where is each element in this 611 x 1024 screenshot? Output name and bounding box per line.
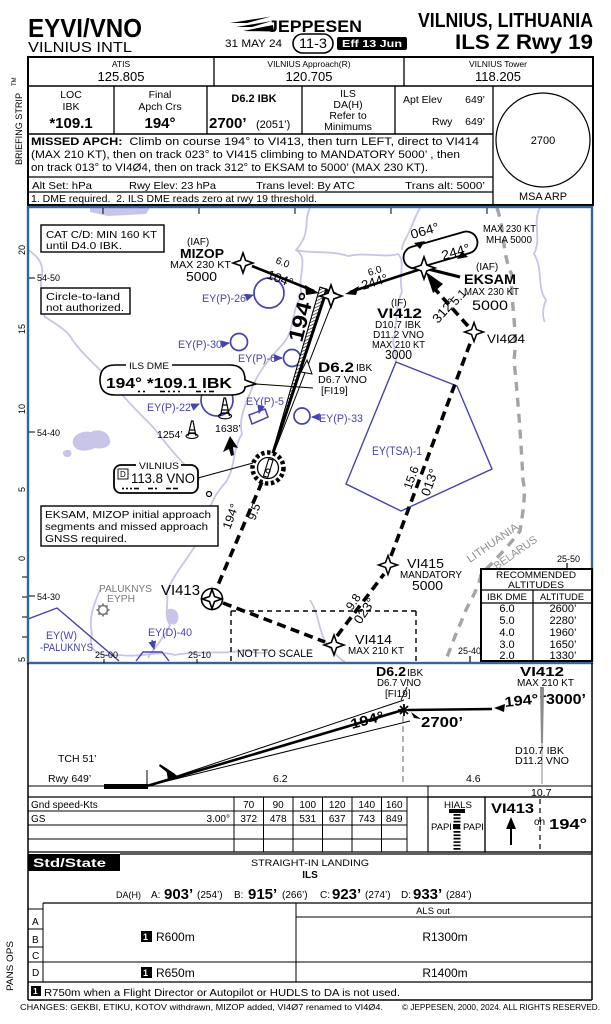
svg-text:2280’: 2280’	[550, 615, 577, 627]
svg-text:EY(P)-26: EY(P)-26	[202, 293, 246, 305]
svg-text:VI412: VI412	[520, 664, 564, 679]
svg-text:5: 5	[17, 657, 27, 662]
svg-text:194°: 194°	[549, 816, 587, 833]
svg-text:4.6: 4.6	[466, 773, 481, 785]
svg-text:1. DME required. 2. ILS DME r: 1. DME required. 2. ILS DME reads zero a…	[31, 193, 317, 205]
svg-text:649’: 649’	[465, 116, 485, 128]
svg-text:1: 1	[143, 968, 148, 978]
svg-text:STRAIGHT-IN LANDING: STRAIGHT-IN LANDING	[251, 858, 369, 869]
svg-text:ALS out: ALS out	[416, 906, 450, 917]
svg-text:-PALUKNYS: -PALUKNYS	[40, 642, 93, 654]
svg-text:until D4.0 IBK.: until D4.0 IBK.	[46, 240, 122, 252]
svg-text:3.00°: 3.00°	[207, 814, 230, 825]
svg-text:5000: 5000	[472, 297, 508, 313]
svg-text:(284’): (284’)	[446, 890, 472, 901]
svg-text:TM: TM	[12, 77, 18, 86]
svg-text:EY(P)-6: EY(P)-6	[238, 353, 276, 365]
svg-text:EKSAM, MIZOP initial approach: EKSAM, MIZOP initial approach	[45, 509, 211, 521]
svg-text:PAPI: PAPI	[463, 822, 484, 833]
svg-text:PAPI: PAPI	[431, 822, 452, 833]
svg-text:EY(D)-40: EY(D)-40	[148, 627, 192, 639]
svg-text:54-40: 54-40	[37, 428, 60, 438]
svg-text:Eff 13 Jun: Eff 13 Jun	[342, 39, 402, 50]
svg-text:Alt Set: hPa: Alt Set: hPa	[32, 180, 92, 192]
svg-text:BRIEFING STRIP: BRIEFING STRIP	[14, 93, 25, 165]
svg-text:Final: Final	[149, 89, 172, 101]
svg-text:VI413: VI413	[491, 800, 534, 816]
svg-text:VI4Ø4: VI4Ø4	[487, 332, 525, 346]
svg-text:100: 100	[299, 800, 316, 811]
svg-text:EY(P)-30: EY(P)-30	[178, 339, 222, 351]
svg-text:R650m: R650m	[156, 966, 195, 980]
svg-text:194°: 194°	[144, 115, 175, 132]
svg-text:25-00: 25-00	[95, 650, 118, 660]
svg-text:LOC: LOC	[60, 89, 82, 101]
svg-text:10: 10	[17, 404, 27, 414]
svg-text:120.705: 120.705	[286, 69, 333, 84]
svg-text:2700: 2700	[531, 135, 555, 147]
svg-text:1330’: 1330’	[550, 650, 577, 662]
svg-text:3000: 3000	[385, 347, 412, 362]
svg-text:R1400m: R1400m	[422, 966, 467, 980]
svg-text:ALTITUDE: ALTITUDE	[540, 592, 584, 603]
svg-text:2600’: 2600’	[550, 603, 577, 615]
svg-text:(274’): (274’)	[365, 890, 391, 901]
svg-text:54-50: 54-50	[37, 273, 60, 283]
svg-text:D6.2: D6.2	[376, 664, 406, 679]
svg-text:VILNIUS Tower: VILNIUS Tower	[469, 59, 527, 69]
svg-text:not authorized.: not authorized.	[46, 302, 124, 314]
svg-text:D6.2 IBK: D6.2 IBK	[231, 93, 276, 105]
svg-text:D11.2 VNO: D11.2 VNO	[515, 755, 569, 767]
svg-text:Gnd speed-Kts: Gnd speed-Kts	[31, 800, 98, 811]
svg-text:31 MAY 24: 31 MAY 24	[225, 38, 282, 50]
svg-text:EY(W): EY(W)	[46, 630, 77, 642]
svg-text:5000: 5000	[412, 578, 443, 593]
svg-text:Minimums: Minimums	[324, 121, 372, 133]
svg-text:6.2: 6.2	[273, 773, 288, 785]
svg-text:531: 531	[299, 814, 316, 825]
svg-text:ALTITUDES: ALTITUDES	[508, 580, 564, 591]
svg-text:478: 478	[270, 814, 287, 825]
svg-text:11-3: 11-3	[299, 35, 327, 51]
svg-text:90: 90	[273, 800, 285, 811]
svg-text:VILNIUS INTL: VILNIUS INTL	[28, 39, 132, 56]
svg-text:903’: 903’	[164, 886, 193, 903]
svg-text:VI413: VI413	[161, 582, 200, 599]
svg-text:25-50: 25-50	[557, 554, 580, 564]
svg-text:743: 743	[358, 814, 375, 825]
svg-text:Trans level: By ATC: Trans level: By ATC	[256, 180, 355, 192]
svg-text:[FI19]: [FI19]	[321, 385, 348, 397]
svg-text:R1300m: R1300m	[422, 930, 467, 944]
svg-text:5000: 5000	[186, 269, 217, 284]
svg-text:EY(TSA)-1: EY(TSA)-1	[372, 444, 422, 458]
svg-text:Rwy Elev: 23 hPa: Rwy Elev: 23 hPa	[129, 180, 216, 192]
svg-text:C: C	[32, 951, 39, 962]
svg-text:637: 637	[329, 814, 346, 825]
svg-text:5: 5	[17, 487, 27, 492]
svg-text:MAX 210 KT: MAX 210 KT	[348, 645, 405, 657]
svg-text:D:: D:	[401, 890, 411, 901]
svg-text:B:: B:	[234, 890, 243, 901]
svg-text:118.205: 118.205	[475, 69, 521, 84]
svg-text:PANS OPS: PANS OPS	[5, 941, 15, 991]
svg-text:segments and missed approach: segments and missed approach	[45, 521, 208, 533]
svg-text:JEPPESEN: JEPPESEN	[268, 17, 362, 36]
svg-text:3000’: 3000’	[546, 691, 586, 708]
svg-text:20: 20	[17, 245, 27, 255]
svg-text:1960’: 1960’	[550, 627, 577, 639]
svg-text:*109.1: *109.1	[49, 115, 92, 132]
svg-text:B: B	[32, 935, 39, 946]
svg-text:MHA 5000: MHA 5000	[486, 234, 532, 246]
svg-text:6.0: 6.0	[499, 603, 514, 615]
svg-text:EKSAM: EKSAM	[464, 271, 516, 287]
svg-text:5.0: 5.0	[499, 615, 514, 627]
svg-text:Rwy: Rwy	[432, 116, 453, 128]
svg-text:923’: 923’	[332, 886, 361, 903]
svg-text:0: 0	[17, 556, 27, 561]
svg-text:Rwy 649’: Rwy 649’	[48, 773, 91, 785]
svg-text:25-10: 25-10	[188, 650, 211, 660]
svg-text:R600m: R600m	[156, 930, 195, 944]
svg-text:933’: 933’	[413, 886, 442, 903]
svg-text:2.0: 2.0	[499, 650, 514, 662]
svg-text:C:: C:	[320, 890, 330, 901]
svg-text:ATIS: ATIS	[112, 59, 131, 69]
svg-text:CHANGES: GEKBI, ETIKU, KOTOV w: CHANGES: GEKBI, ETIKU, KOTOV withdrawn, …	[20, 1003, 383, 1012]
svg-text:160: 160	[386, 800, 403, 811]
svg-text:TCH 51’: TCH 51’	[58, 753, 97, 765]
svg-text:on track 013° to VI4Ø4, then o: on track 013° to VI4Ø4, then on track 31…	[31, 162, 428, 174]
svg-text:R750m when a Flight Director o: R750m when a Flight Director or Autopilo…	[44, 987, 400, 999]
svg-text:IBK: IBK	[356, 363, 372, 374]
svg-text:194° *109.1 IBK: 194° *109.1 IBK	[106, 375, 232, 392]
svg-text:EY(P)-22: EY(P)-22	[147, 402, 191, 414]
svg-text:Apch Crs: Apch Crs	[138, 101, 181, 113]
svg-text:DA(H): DA(H)	[116, 890, 141, 900]
svg-text:EY(P)-33: EY(P)-33	[319, 413, 363, 425]
svg-text:1254’: 1254’	[157, 429, 183, 441]
svg-text:372: 372	[240, 814, 257, 825]
svg-text:ILS DME: ILS DME	[129, 361, 169, 371]
svg-text:1: 1	[143, 932, 148, 942]
svg-text:140: 140	[358, 800, 375, 811]
svg-text:GNSS required.: GNSS required.	[45, 533, 127, 545]
svg-text:NOT TO SCALE: NOT TO SCALE	[237, 648, 313, 660]
svg-text:2700’: 2700’	[421, 714, 463, 731]
svg-text:GS: GS	[31, 814, 46, 825]
svg-text:15: 15	[17, 324, 27, 334]
svg-text:D6.7 VNO: D6.7 VNO	[377, 678, 421, 689]
svg-text:MISSED APCH: Climb on course: MISSED APCH: Climb on course 194° to VI4…	[31, 136, 479, 148]
svg-text:D6.2: D6.2	[318, 359, 354, 375]
svg-text:A:: A:	[151, 890, 160, 901]
svg-text:25-40: 25-40	[458, 646, 481, 656]
svg-text:649’: 649’	[465, 94, 485, 106]
svg-text:915’: 915’	[248, 886, 277, 903]
svg-text:ILS: ILS	[302, 870, 318, 881]
svg-text:D: D	[120, 470, 126, 479]
svg-text:70: 70	[243, 800, 255, 811]
svg-text:2700’: 2700’	[209, 115, 247, 132]
svg-text:MSA ARP: MSA ARP	[519, 191, 567, 203]
svg-text:(2051’): (2051’)	[256, 119, 290, 131]
svg-text:[FI19]: [FI19]	[385, 689, 411, 700]
svg-text:D: D	[32, 968, 39, 979]
svg-text:EYPH: EYPH	[107, 594, 135, 605]
svg-text:4.0: 4.0	[499, 627, 514, 639]
svg-text:on: on	[534, 817, 545, 828]
svg-text:54-30: 54-30	[37, 592, 60, 602]
svg-text:EY(P)-5: EY(P)-5	[246, 396, 284, 408]
svg-text:(266’): (266’)	[282, 890, 308, 901]
svg-text:IBK DME: IBK DME	[487, 592, 527, 603]
svg-text:A: A	[32, 917, 39, 928]
svg-text:849: 849	[386, 814, 403, 825]
svg-text:125.805: 125.805	[98, 69, 145, 84]
svg-text:(254’): (254’)	[197, 890, 223, 901]
svg-text:ILS Z Rwy 19: ILS Z Rwy 19	[455, 31, 593, 54]
svg-text:VILNIUS, LITHUANIA: VILNIUS, LITHUANIA	[418, 10, 593, 32]
svg-text:Trans alt: 5000’: Trans alt: 5000’	[405, 180, 485, 192]
svg-text:MAX 210 KT: MAX 210 KT	[517, 678, 574, 689]
svg-text:(MAX 210 KT), then on track 02: (MAX 210 KT), then on track 023° to VI41…	[31, 149, 460, 161]
svg-text:113.8 VNO: 113.8 VNO	[131, 470, 195, 486]
svg-text:Std/State: Std/State	[33, 856, 106, 870]
svg-text:IBK: IBK	[63, 101, 80, 113]
svg-text:Apt Elev: Apt Elev	[403, 94, 443, 106]
svg-text:1: 1	[33, 986, 38, 996]
svg-text:© JEPPESEN, 2000, 2024. ALL RI: © JEPPESEN, 2000, 2024. ALL RIGHTS RESER…	[402, 1003, 600, 1012]
svg-text:1638’: 1638’	[215, 423, 241, 435]
svg-text:120: 120	[329, 800, 346, 811]
svg-text:VILNIUS Approach(R): VILNIUS Approach(R)	[267, 59, 350, 69]
